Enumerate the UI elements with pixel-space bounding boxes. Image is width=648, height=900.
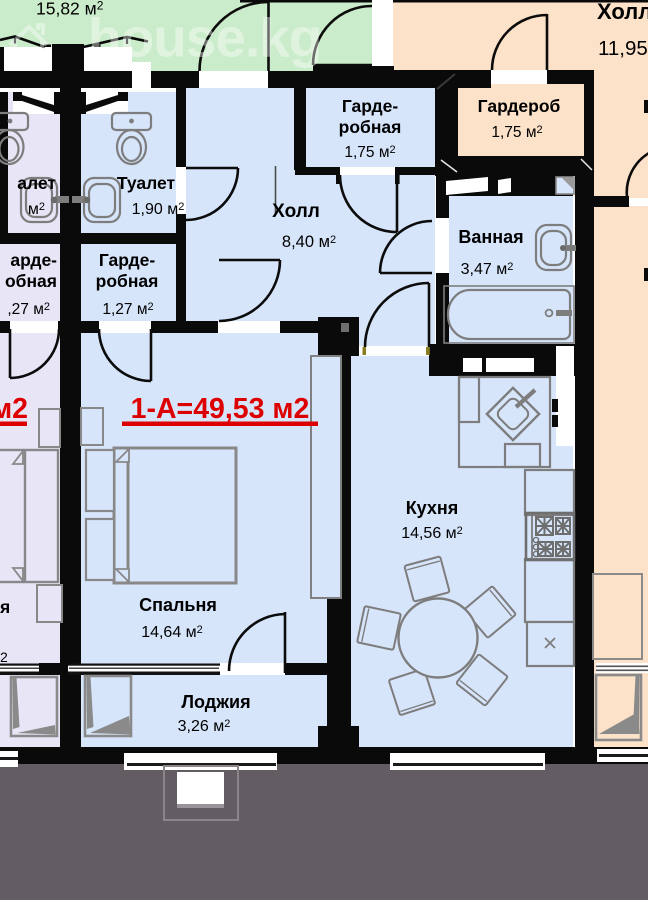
svg-text:Гарде-: Гарде- (99, 250, 156, 270)
svg-text:Холл: Холл (597, 0, 648, 24)
svg-text:house.kg: house.kg (88, 7, 321, 69)
svg-text:15,82 м2: 15,82 м2 (36, 0, 104, 19)
svg-text:м2: м2 (0, 393, 28, 425)
svg-text:1,75 м2: 1,75 м2 (491, 124, 542, 141)
svg-text:робная: робная (339, 117, 402, 137)
svg-text:1-А=49,53 м2: 1-А=49,53 м2 (131, 393, 310, 425)
svg-text:алет: алет (17, 173, 56, 193)
svg-text:1,75 м2: 1,75 м2 (344, 144, 395, 161)
svg-text:арде-: арде- (10, 250, 57, 270)
svg-text:Ванная: Ванная (458, 227, 523, 247)
svg-text:14,64 м2: 14,64 м2 (141, 624, 203, 641)
svg-text:2: 2 (0, 649, 8, 665)
svg-text:3,47 м2: 3,47 м2 (461, 261, 514, 278)
svg-text:1,90 м2: 1,90 м2 (132, 201, 185, 218)
svg-text:1,27 м2: 1,27 м2 (102, 301, 153, 318)
svg-text:,27 м2: ,27 м2 (7, 301, 50, 318)
svg-text:Лоджия: Лоджия (181, 692, 250, 712)
svg-text:Кухня: Кухня (406, 498, 459, 518)
svg-text:8,40 м2: 8,40 м2 (282, 233, 336, 251)
svg-text:Холл: Холл (272, 201, 320, 222)
svg-text:я: я (0, 597, 10, 617)
svg-text:Спальня: Спальня (139, 595, 217, 615)
svg-text:Гардероб: Гардероб (478, 96, 561, 116)
svg-text:обная: обная (5, 271, 57, 291)
svg-text:3,26 м2: 3,26 м2 (178, 718, 231, 735)
svg-text:робная: робная (96, 271, 159, 291)
svg-text:Туалет: Туалет (117, 173, 176, 193)
svg-text:11,95: 11,95 (598, 37, 648, 60)
svg-text:14,56 м2: 14,56 м2 (401, 525, 463, 542)
svg-text:Гарде-: Гарде- (342, 96, 399, 116)
